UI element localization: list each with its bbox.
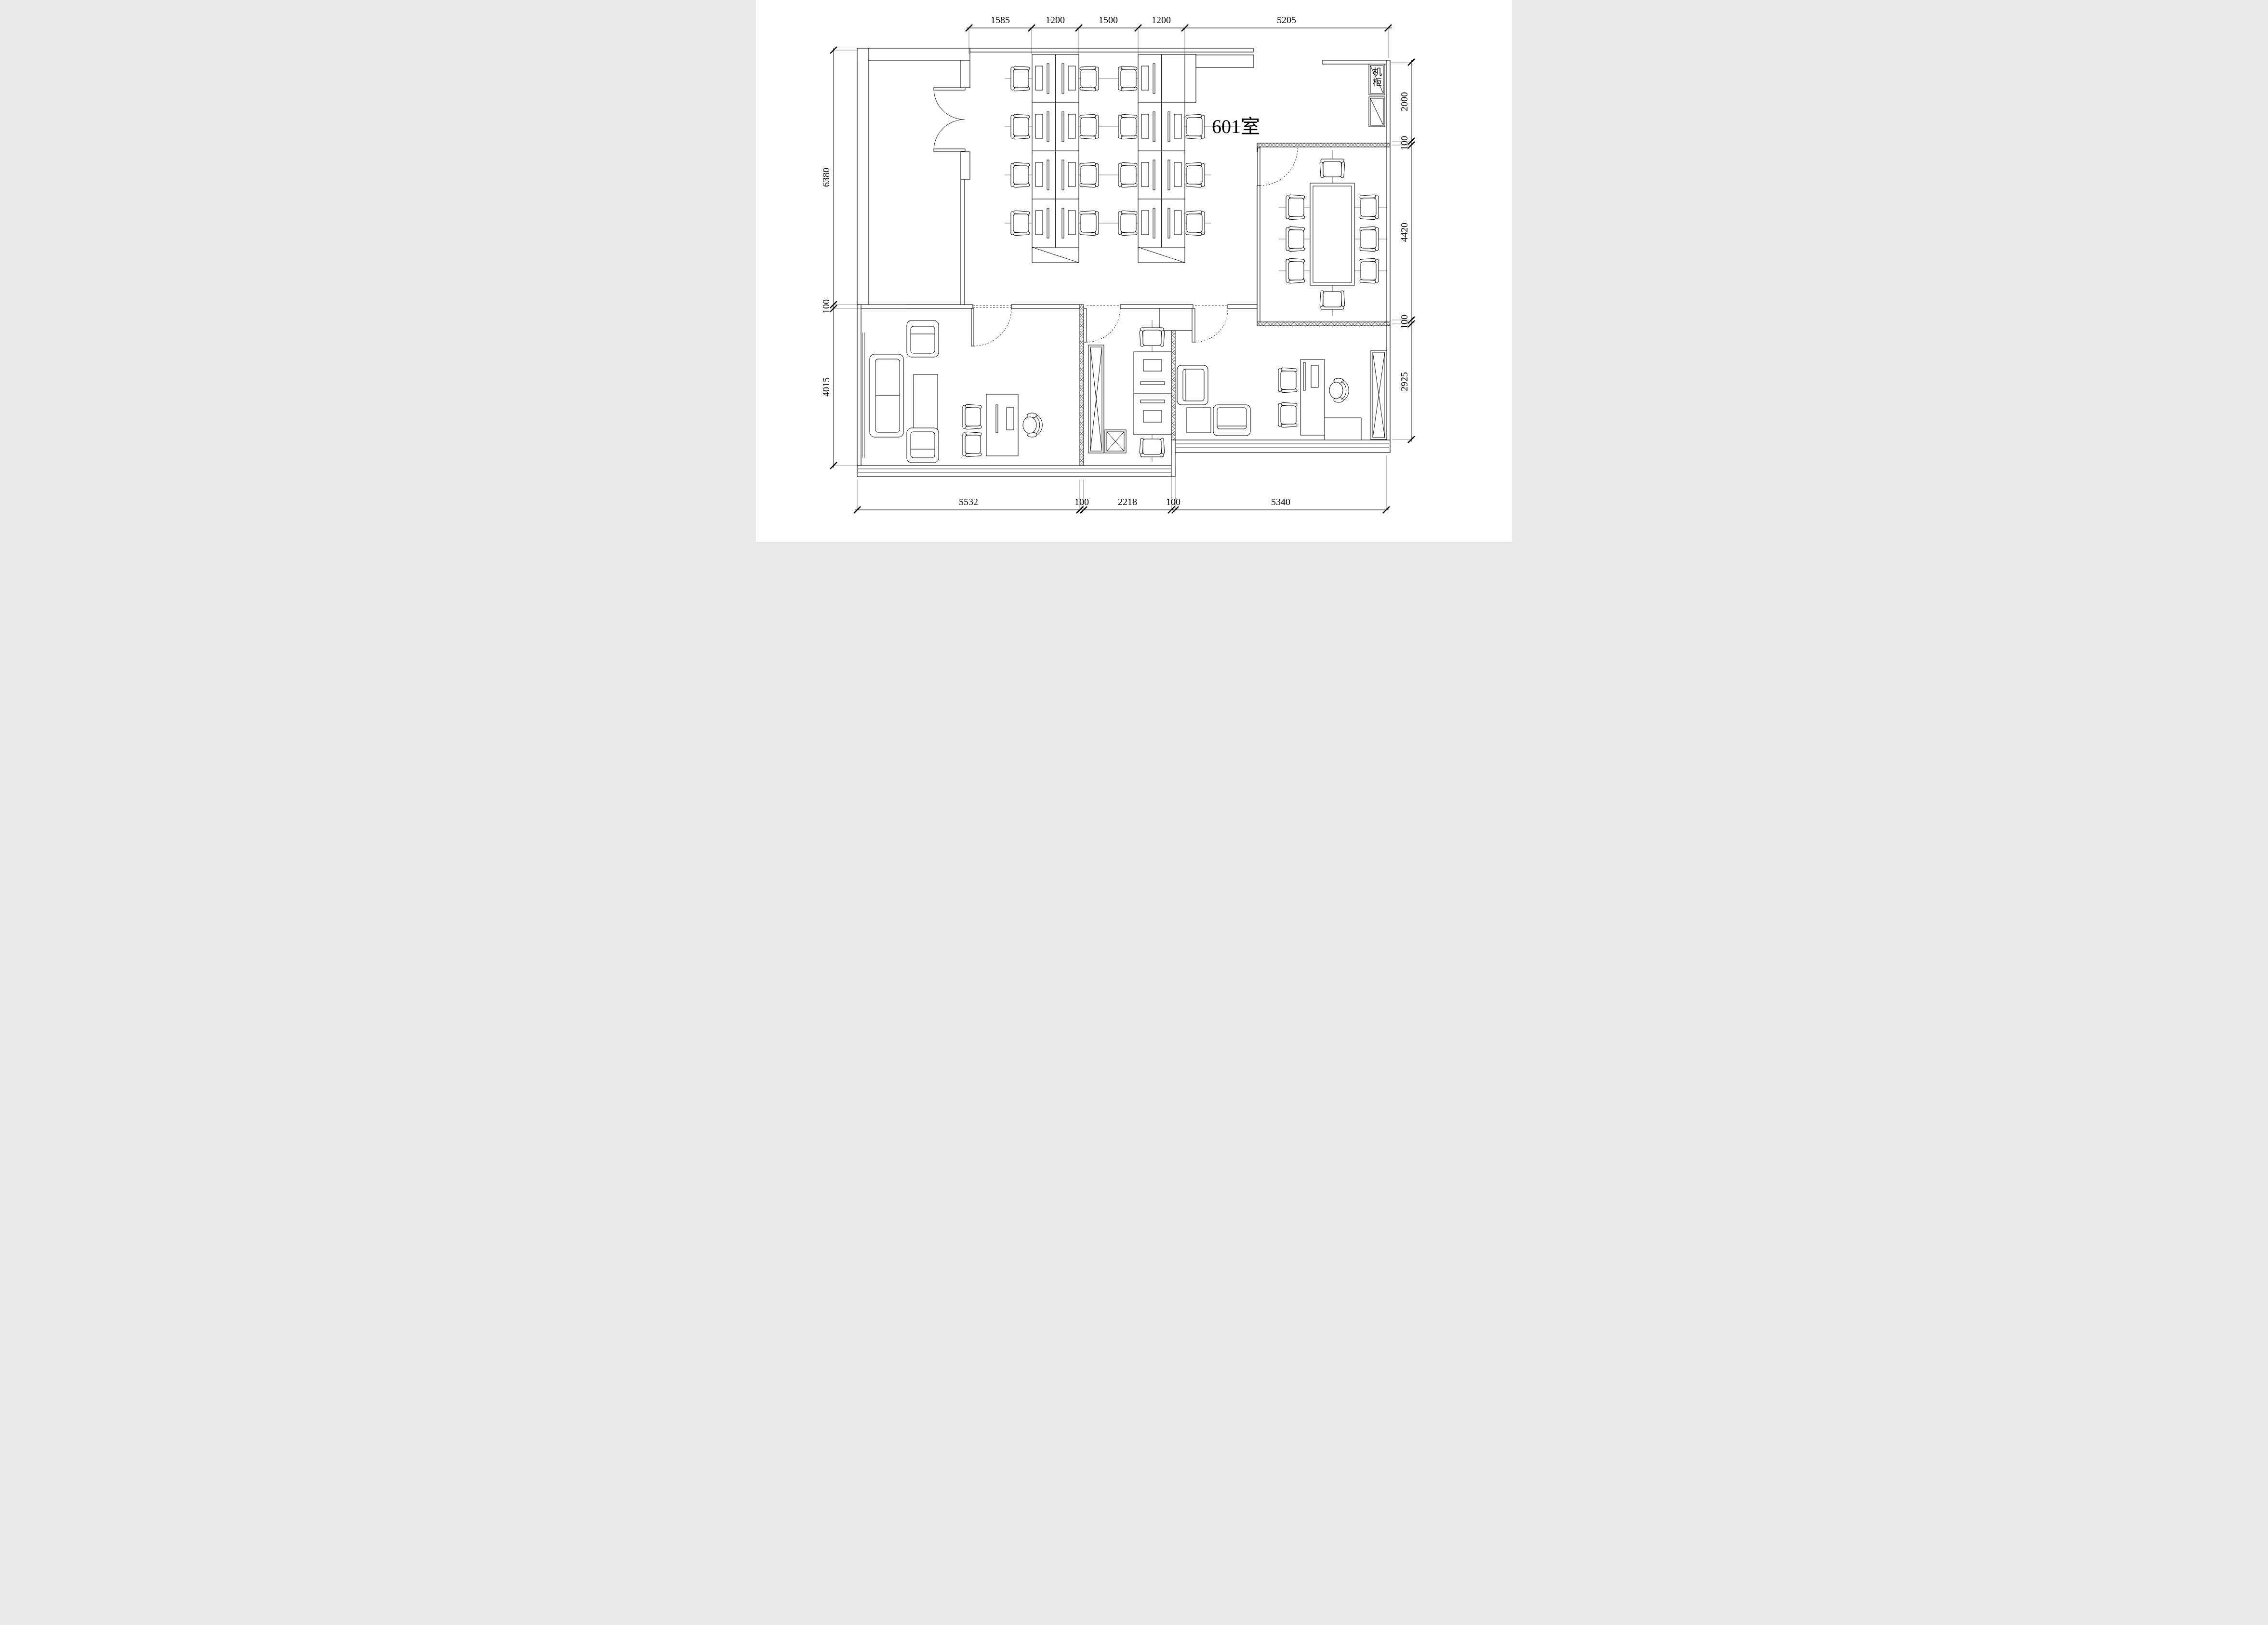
- entry-jamb-bottom: [961, 152, 970, 179]
- desk-screen: [1047, 64, 1049, 93]
- top-wall-thick: [857, 48, 970, 60]
- desk-screen: [1062, 208, 1064, 238]
- dim-label: 5340: [1271, 497, 1290, 507]
- office-chair: [963, 404, 981, 429]
- office-chair: [1080, 162, 1099, 187]
- dim-label: 4015: [821, 377, 832, 397]
- door-meeting-room: [1258, 148, 1298, 186]
- armchair: [907, 320, 939, 357]
- office-chair: [1186, 162, 1205, 187]
- desk-screen: [1062, 64, 1064, 93]
- monitor: [1174, 162, 1181, 186]
- workstation-area: [1032, 54, 1185, 263]
- conference-table: [1310, 183, 1354, 285]
- monitor: [1035, 114, 1043, 138]
- tall-cabinet: [1371, 350, 1387, 440]
- dim-label: 100: [1399, 315, 1410, 329]
- low-cabinet: [1105, 430, 1126, 453]
- office-chair: [1118, 66, 1137, 91]
- dim-label: 2925: [1399, 372, 1410, 391]
- sofa: [870, 354, 903, 437]
- sofa: [1177, 365, 1208, 405]
- office-chair: [1118, 114, 1137, 139]
- office-chair: [1320, 291, 1345, 309]
- dim-label: 5532: [959, 497, 978, 507]
- closet-box: [1160, 308, 1193, 331]
- desk-screen: [1062, 112, 1064, 142]
- monitor: [1141, 114, 1149, 138]
- monitor: [1068, 114, 1075, 138]
- dim-label: 2000: [1399, 92, 1410, 111]
- room-label: 601室: [1212, 116, 1260, 137]
- dim-label: 100: [1074, 497, 1089, 507]
- armchair: [907, 428, 939, 463]
- dim-label: 1585: [991, 15, 1010, 26]
- left-wall-lower: [857, 305, 861, 466]
- file-cabinet: [1088, 345, 1104, 453]
- manager-desk: [1300, 360, 1361, 440]
- monitor: [1068, 211, 1075, 235]
- office-chair: [1286, 226, 1305, 252]
- office-chair: [1080, 66, 1099, 91]
- office-chair: [1140, 438, 1165, 457]
- partition: [1120, 305, 1193, 308]
- office-chair: [1360, 258, 1379, 283]
- dim-label: 100: [821, 299, 832, 314]
- meeting-glass-wall: [1257, 186, 1260, 322]
- office-chair: [1286, 258, 1305, 283]
- office-chair: [1320, 159, 1345, 178]
- desk-screen: [1168, 208, 1170, 238]
- hatched-partition-left: [1080, 305, 1084, 466]
- office-chair: [1118, 162, 1137, 187]
- dim-label: 5205: [1277, 15, 1296, 26]
- office-chair: [1186, 114, 1205, 139]
- dim-label: 100: [1399, 136, 1410, 150]
- monitor: [1035, 162, 1043, 186]
- office-left-furniture: [870, 320, 1042, 463]
- cabinet-label: 机柜: [1371, 67, 1382, 88]
- office-chair: [1278, 402, 1297, 427]
- monitor: [1035, 66, 1043, 90]
- office-chair: [1011, 211, 1030, 236]
- dim-label: 1200: [1152, 15, 1171, 26]
- side-table: [1187, 408, 1211, 433]
- door-office-left: [971, 306, 1011, 346]
- monitor: [1141, 162, 1149, 186]
- office-chair: [1360, 195, 1379, 220]
- desk-screen: [1047, 208, 1049, 238]
- dim-label: 1200: [1046, 15, 1065, 26]
- desk-screen: [1153, 112, 1155, 142]
- coffee-table: [914, 374, 938, 431]
- dim-label: 2218: [1118, 497, 1137, 507]
- bottom-window-band-right: [1175, 440, 1390, 453]
- bottom-window-band-left: [857, 466, 1175, 477]
- monitor: [1035, 211, 1043, 235]
- meeting-wall-bottom: [1257, 322, 1390, 326]
- dimension-bottom: 5532 100 2218 100 5340: [854, 455, 1390, 513]
- dimension-right: 2000 100 4420 100 2925: [1391, 59, 1415, 443]
- double-desk: [1134, 352, 1171, 435]
- desk-screen: [1062, 160, 1064, 190]
- beam-bulkhead: [1196, 55, 1254, 67]
- monitor: [1068, 66, 1075, 90]
- door-office-right: [1192, 306, 1228, 342]
- desk-screen: [1153, 64, 1155, 93]
- monitor: [1141, 66, 1149, 90]
- meeting-wall-top: [1257, 143, 1390, 147]
- partition: [861, 305, 973, 308]
- top-wall-right-section: [1323, 60, 1390, 64]
- drawing-sheet: 机柜: [756, 0, 1512, 542]
- office-chair: [1186, 211, 1205, 236]
- office-chair: [1286, 195, 1305, 220]
- door-office-middle: [1084, 306, 1120, 342]
- desk-screen: [1153, 160, 1155, 190]
- step-wall: [1171, 440, 1175, 477]
- dim-label: 1500: [1099, 15, 1118, 26]
- desk-screen: [1047, 160, 1049, 190]
- office-chair: [963, 432, 981, 457]
- top-wall: [970, 48, 1253, 52]
- manager-desk: [986, 394, 1018, 456]
- monitor: [1174, 114, 1181, 138]
- office-chair: [1118, 211, 1137, 236]
- dim-label: 6380: [821, 168, 832, 187]
- office-chair: [1140, 328, 1165, 346]
- server-cabinet-area: 机柜: [1369, 64, 1385, 127]
- hatched-partition-right: [1171, 331, 1175, 440]
- office-chair: [1080, 211, 1099, 236]
- entry-jamb-top: [961, 60, 970, 88]
- office-chair: [1360, 226, 1379, 252]
- monitor: [1174, 211, 1181, 235]
- vestibule-wall: [961, 179, 965, 305]
- desk-screen: [1153, 208, 1155, 238]
- desk-screen: [1168, 112, 1170, 142]
- office-chair: [1278, 368, 1297, 393]
- dim-label: 100: [1166, 497, 1180, 507]
- armchair: [1213, 405, 1250, 436]
- office-chair: [1011, 114, 1030, 139]
- executive-chair: [1023, 413, 1042, 437]
- desk-screen: [1168, 160, 1170, 190]
- left-wall-upper: [857, 48, 868, 305]
- office-chair: [1080, 114, 1099, 139]
- partition: [1011, 305, 1080, 308]
- office-chair: [1011, 162, 1030, 187]
- partition: [1228, 305, 1257, 308]
- entrance-double-door: [934, 88, 965, 151]
- office-middle-furniture: [1088, 345, 1171, 453]
- office-chair: [1011, 66, 1030, 91]
- monitor: [1068, 162, 1075, 186]
- executive-chair: [1329, 378, 1349, 402]
- desk-screen: [1047, 112, 1049, 142]
- monitor: [1141, 211, 1149, 235]
- dim-label: 4420: [1399, 223, 1410, 242]
- floor-plan-601: 机柜: [756, 0, 1512, 542]
